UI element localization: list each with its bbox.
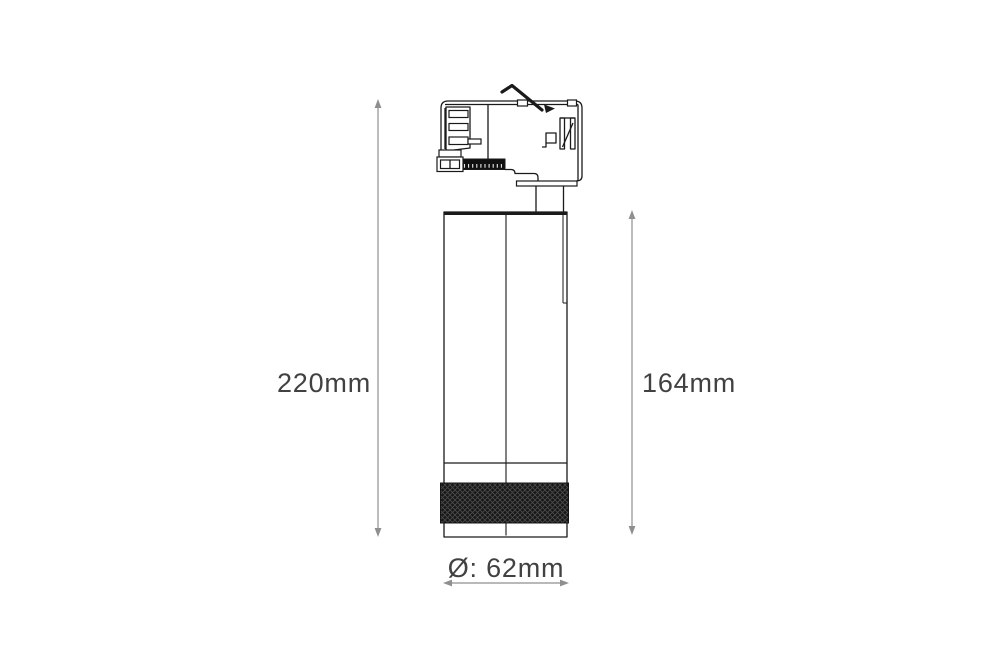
contact-slot xyxy=(449,111,468,118)
diameter-label: Ø: 62mm xyxy=(448,553,565,583)
diameter-dimension: Ø: 62mm xyxy=(443,553,569,586)
adapter-tab xyxy=(518,100,528,106)
knob-step xyxy=(439,150,461,157)
flange-plate xyxy=(517,181,578,186)
adapter-tab xyxy=(568,100,577,106)
arrowhead-down xyxy=(629,526,636,535)
lever-pointer xyxy=(544,105,555,114)
overall-height-label: 220mm xyxy=(277,368,371,398)
latch-block xyxy=(546,133,556,143)
lamp-body-drawing xyxy=(441,212,569,537)
body-height-dimension: 164mm xyxy=(629,210,736,535)
dimension-drawing-canvas: 220mm 164mm Ø: 62mm xyxy=(0,0,1000,667)
knurled-ring xyxy=(441,483,569,523)
contact-slot-tab xyxy=(468,139,481,144)
arrowhead-up xyxy=(375,99,382,108)
track-adapter-drawing xyxy=(437,86,582,213)
contact-slot xyxy=(449,124,468,131)
arrowhead-up xyxy=(629,210,636,219)
contact-slot xyxy=(449,137,468,145)
connector-strip xyxy=(461,159,505,170)
overall-height-dimension: 220mm xyxy=(277,99,381,537)
body-height-label: 164mm xyxy=(642,368,736,398)
track-spotlight-dimension-drawing: 220mm 164mm Ø: 62mm xyxy=(0,0,1000,667)
neck xyxy=(536,186,564,212)
arrowhead-down xyxy=(375,528,382,537)
retention-clip xyxy=(560,118,575,149)
